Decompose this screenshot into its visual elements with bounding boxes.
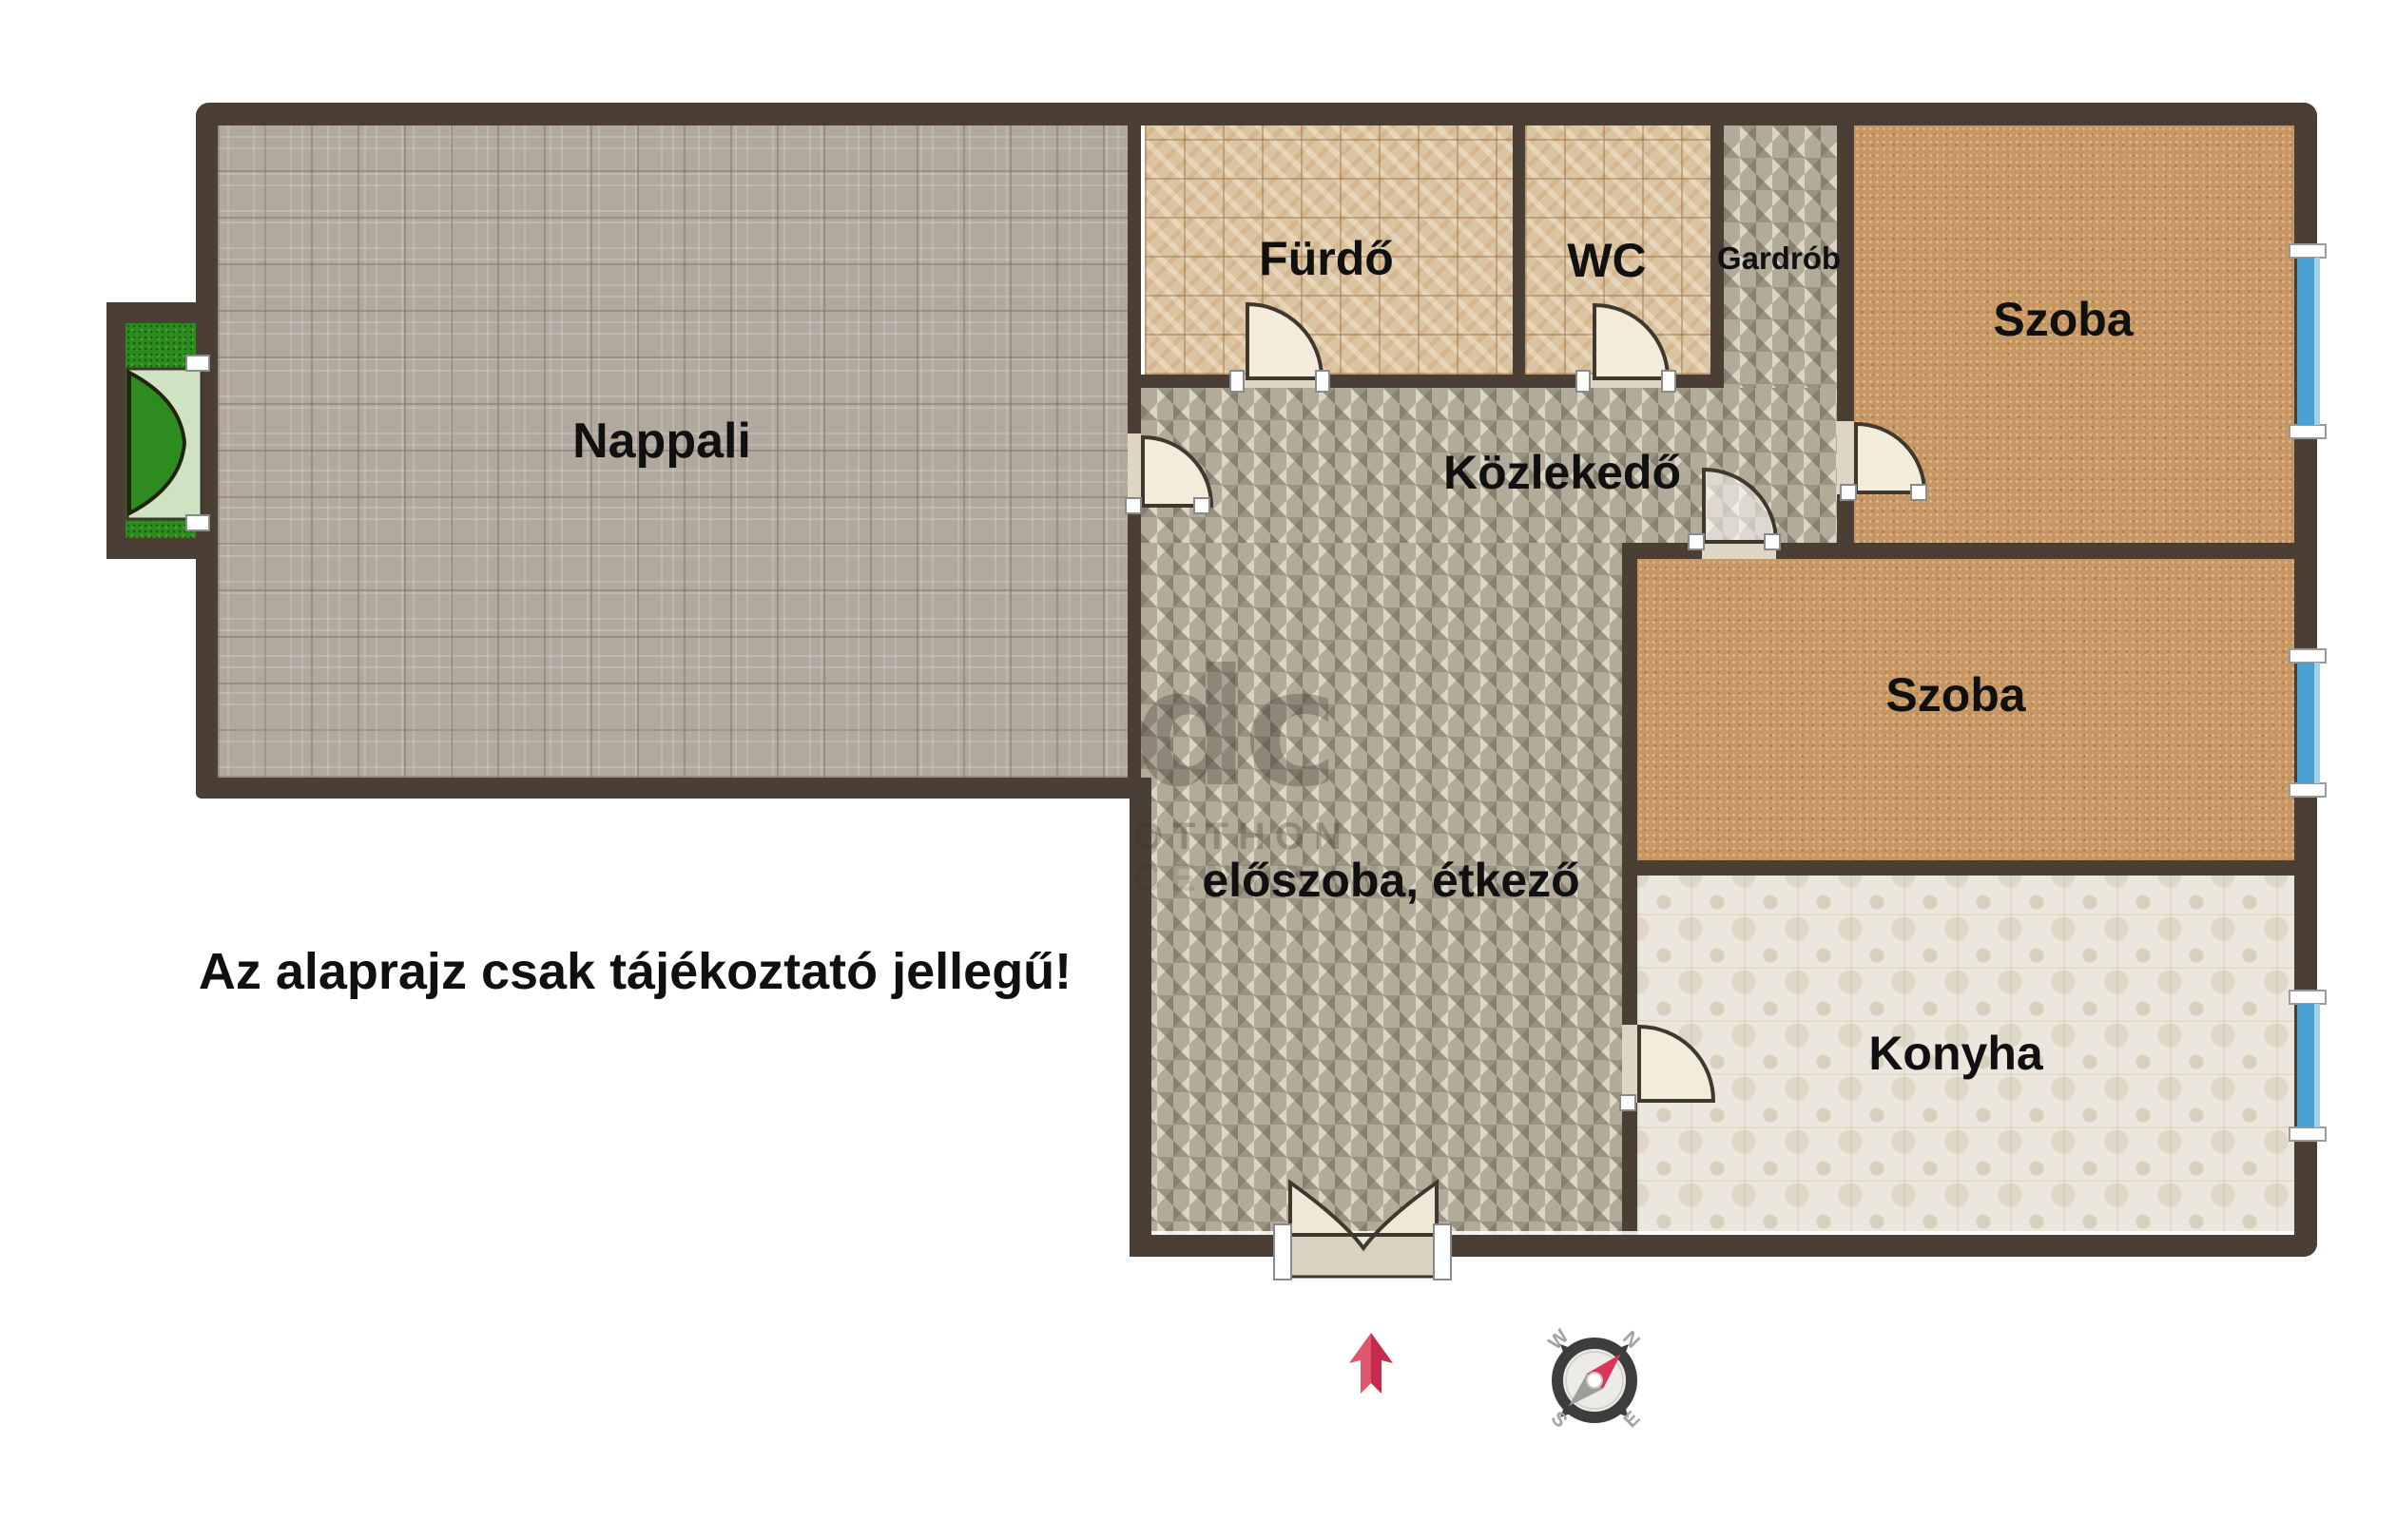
door-arc-wc [1594, 305, 1668, 378]
label-kozlekedo: Közlekedő [1443, 445, 1681, 500]
door-arc-furdo [1247, 304, 1322, 378]
watermark-line1: OTTHON [1133, 818, 1390, 856]
balcony-door [127, 356, 209, 530]
door-arc-nappali [1143, 437, 1211, 506]
door-arc-szoba-also [1704, 470, 1776, 542]
label-eloszoba: előszoba, étkező [1202, 853, 1579, 908]
label-szoba-also: Szoba [1885, 667, 2025, 722]
window-konyha [2290, 991, 2326, 1141]
entrance-door [1274, 1183, 1451, 1280]
compass-icon: N W S E [1544, 1325, 1644, 1432]
label-szoba-felso: Szoba [1993, 292, 2133, 347]
label-furdo: Fürdő [1259, 231, 1394, 286]
watermark-initials: dc [1133, 648, 1390, 810]
disclaimer-note: Az alaprajz csak tájékoztató jellegű! [199, 942, 1072, 1001]
door-arc-szoba-felso [1856, 424, 1924, 492]
window-szoba-also [2290, 649, 2326, 797]
label-konyha: Konyha [1868, 1026, 2042, 1081]
floor-plan: N W S E Nappali Fürdő WC Gardrób Szoba K… [0, 0, 2396, 1540]
label-gardrob: Gardrób [1717, 241, 1841, 277]
label-wc: WC [1567, 233, 1646, 288]
door-arc-konyha [1639, 1027, 1713, 1101]
label-nappali: Nappali [572, 413, 751, 470]
north-arrow-icon [1349, 1333, 1393, 1394]
window-szoba-felso [2290, 244, 2326, 438]
